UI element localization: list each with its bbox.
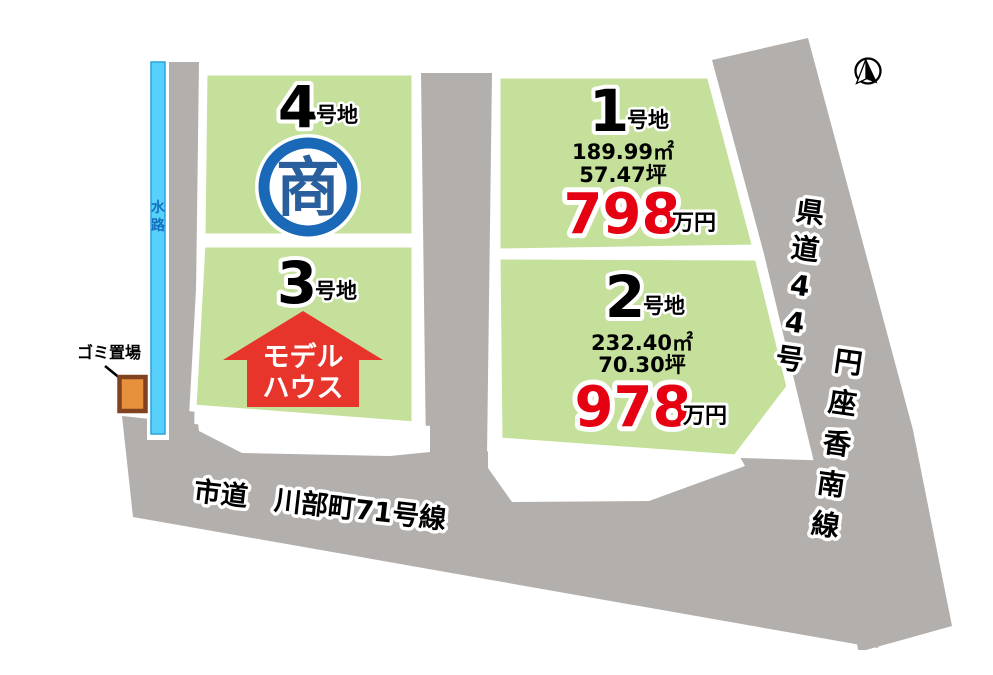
north-compass-icon bbox=[856, 59, 881, 84]
plot-2-area-tsubo: 70.30坪 bbox=[598, 353, 685, 377]
plot-2-suffix: 号地 bbox=[643, 294, 685, 318]
model-house-line2: ハウス bbox=[263, 373, 344, 404]
status-badge-character: 商 bbox=[276, 152, 340, 226]
plot-1-price-unit: 万円 bbox=[671, 211, 716, 236]
status-negotiation-badge: 商 bbox=[255, 134, 361, 240]
plot-3-number: 3 bbox=[277, 249, 317, 317]
plot-3-suffix: 号地 bbox=[315, 279, 357, 303]
plot-2-number: 2 bbox=[605, 263, 645, 331]
plot-2-price: 978 bbox=[575, 375, 692, 440]
plot-1-number: 1 bbox=[589, 77, 629, 145]
land-plot-map: 水路 4 号地 商 3 号地 モデル ハウス 1 号地 189.99㎡ 57.4… bbox=[0, 0, 993, 675]
plot-2-price-unit: 万円 bbox=[682, 404, 727, 429]
garbage-box bbox=[120, 377, 146, 411]
waterway bbox=[151, 62, 165, 434]
garbage-station: ゴミ置場 bbox=[77, 343, 146, 411]
plot-1-price: 798 bbox=[564, 182, 681, 247]
garbage-station-label: ゴミ置場 bbox=[77, 343, 141, 362]
model-house-line1: モデル bbox=[263, 341, 344, 373]
road-middle-strip bbox=[421, 73, 492, 455]
plot-1-suffix: 号地 bbox=[627, 108, 669, 132]
plot-2-area-m2: 232.40㎡ bbox=[591, 331, 693, 355]
plot-4-suffix: 号地 bbox=[316, 103, 358, 127]
plot-1-area-m2: 189.99㎡ bbox=[572, 140, 674, 164]
plot-4-number: 4 bbox=[278, 73, 318, 141]
map-canvas: 水路 4 号地 商 3 号地 モデル ハウス 1 号地 189.99㎡ 57.4… bbox=[0, 0, 993, 675]
